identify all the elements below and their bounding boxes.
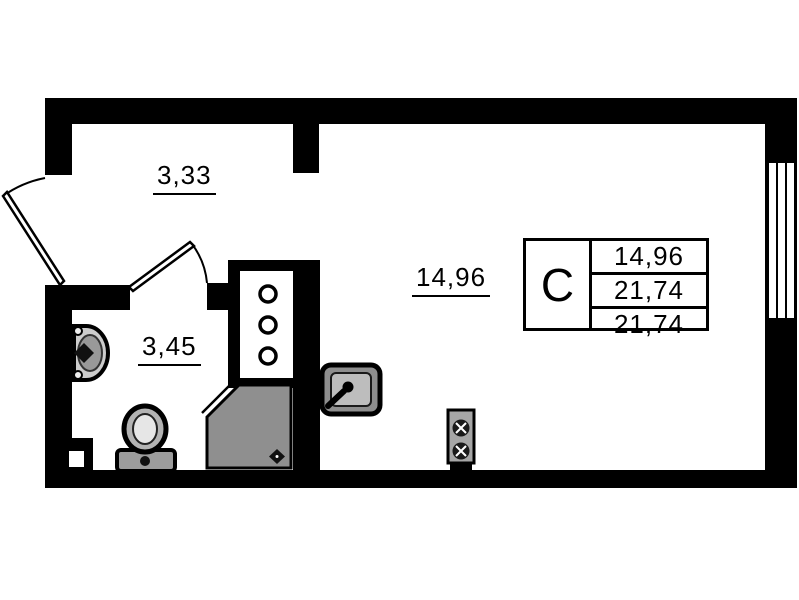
bathroom-area-label: 3,45 — [138, 331, 201, 366]
kitchen-sink-icon — [322, 365, 380, 414]
area-value-row: 21,74 — [592, 306, 706, 340]
floor-plan: 3,33 3,45 14,96 С 14,96 21,74 21,74 — [0, 0, 799, 600]
shower-icon — [202, 380, 291, 468]
area-value-row: 21,74 — [592, 272, 706, 306]
unit-type-cell: С — [526, 241, 592, 328]
unit-areas-column: 14,96 21,74 21,74 — [592, 241, 706, 328]
living-area-label: 14,96 — [412, 262, 490, 297]
area-value-row: 14,96 — [592, 241, 706, 272]
washbasin-icon — [74, 326, 108, 380]
unit-stamp-table: С 14,96 21,74 21,74 — [523, 238, 709, 331]
hallway-area-label: 3,33 — [153, 160, 216, 195]
riser-pipes-icon — [260, 286, 276, 364]
entrance-door-icon — [3, 178, 64, 285]
toilet-icon — [117, 406, 175, 471]
stove-icon — [448, 410, 474, 470]
interior-door-icon — [129, 242, 207, 291]
